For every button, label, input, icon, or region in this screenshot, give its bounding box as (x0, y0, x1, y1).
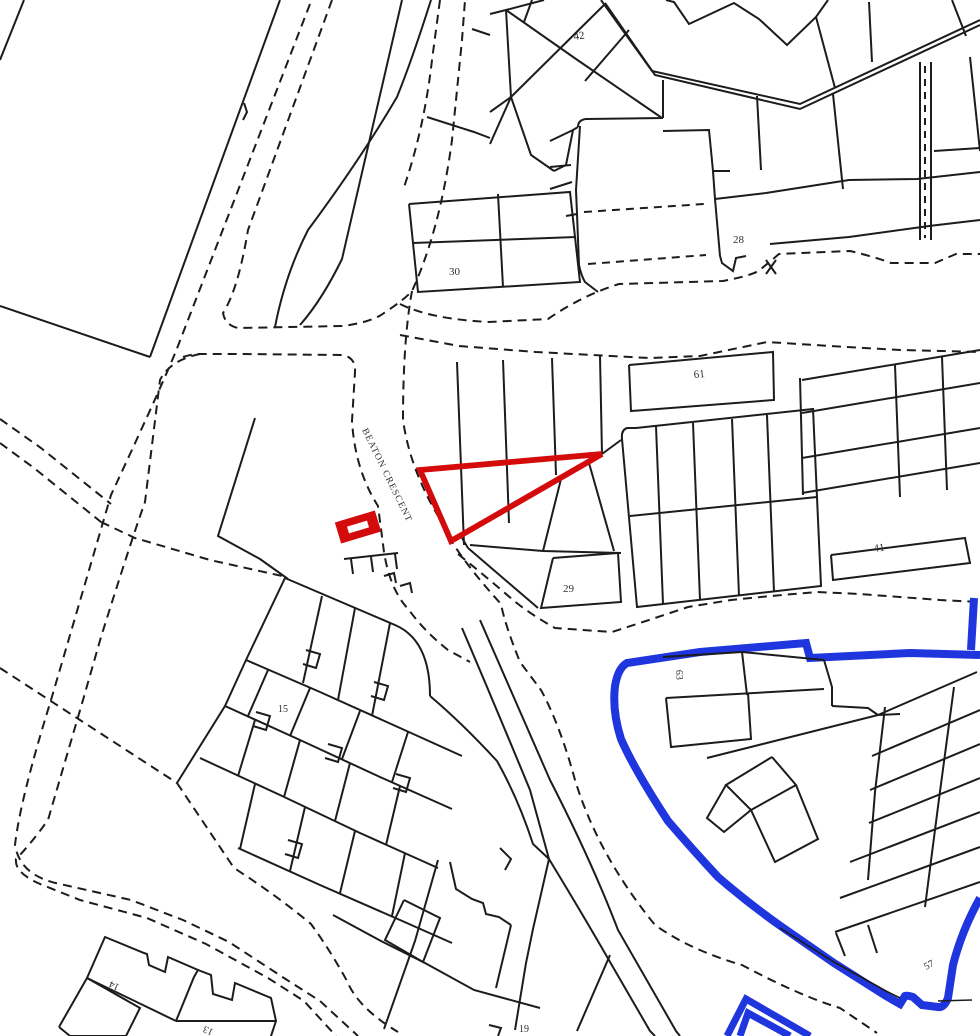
svg-text:28: 28 (733, 234, 745, 246)
svg-text:19: 19 (519, 1024, 529, 1035)
svg-text:15: 15 (278, 704, 288, 715)
svg-text:30: 30 (449, 266, 461, 278)
svg-text:63: 63 (673, 670, 685, 681)
svg-text:29: 29 (563, 583, 575, 595)
svg-text:61: 61 (693, 368, 705, 381)
svg-text:41: 41 (873, 542, 885, 555)
svg-text:42: 42 (573, 30, 586, 43)
